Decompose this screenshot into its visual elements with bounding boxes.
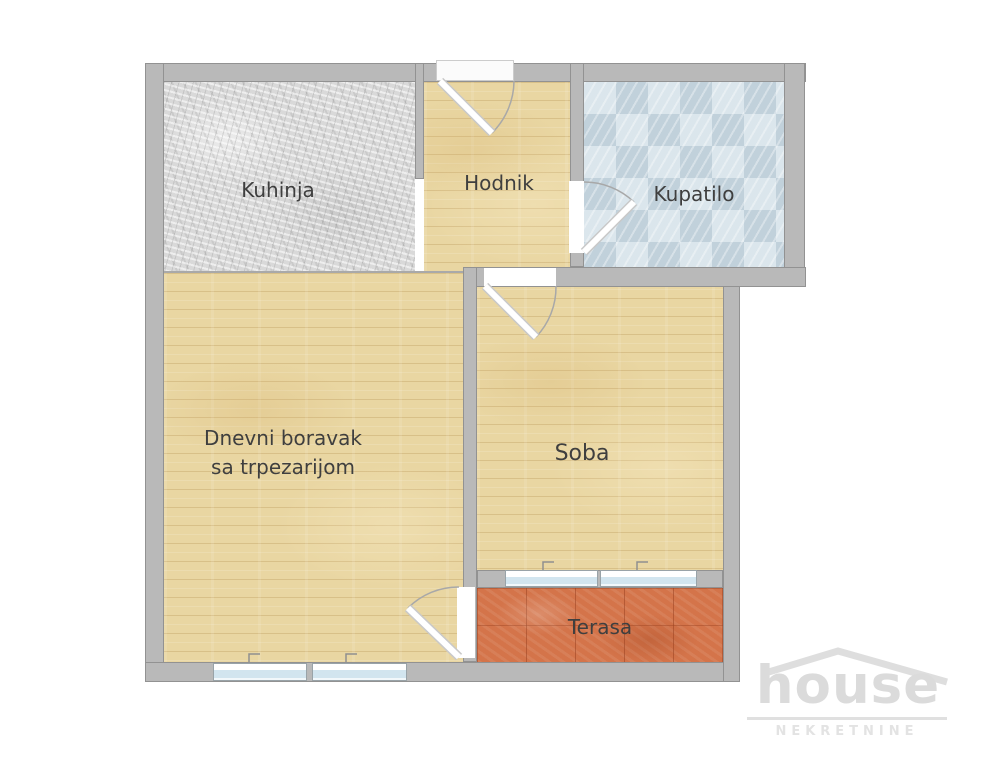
wall-left — [145, 63, 164, 682]
agency-logo: house NEKRETNINE — [745, 646, 951, 756]
wall-kitchen-hallway — [415, 63, 424, 179]
living-room-window-1 — [213, 663, 307, 681]
kitchen-living-boundary-line — [164, 271, 463, 273]
logo-divider — [747, 717, 947, 720]
floorplan-canvas: Kuhinja Hodnik Kupatilo Dnevni boravak s… — [0, 0, 988, 768]
bedroom-window-1 — [505, 570, 598, 587]
living-room-label-line2: sa trpezarijom — [211, 455, 355, 479]
bedroom-door-opening — [484, 268, 556, 286]
logo-brand: house — [745, 658, 951, 714]
bedroom-floor — [477, 280, 723, 570]
bedroom-window-2 — [600, 570, 697, 587]
room-label-bedroom: Soba — [507, 442, 657, 466]
wall-right-bathroom — [784, 63, 805, 287]
room-label-hallway: Hodnik — [424, 171, 574, 195]
living-room-label-line1: Dnevni boravak — [204, 426, 362, 450]
wall-right-lower — [723, 267, 740, 682]
living-room-window-2 — [312, 663, 407, 681]
logo-tagline: NEKRETNINE — [747, 724, 947, 739]
kitchen-floor — [164, 82, 415, 271]
entrance-door-opening — [436, 60, 514, 81]
bathroom-floor — [584, 82, 784, 267]
room-label-bathroom: Kupatilo — [619, 182, 769, 206]
room-label-living-room: Dnevni boravak sa trpezarijom — [158, 424, 408, 482]
terrace-door-opening — [457, 587, 475, 658]
room-label-terrace: Terasa — [525, 615, 675, 639]
room-label-kitchen: Kuhinja — [178, 178, 378, 202]
